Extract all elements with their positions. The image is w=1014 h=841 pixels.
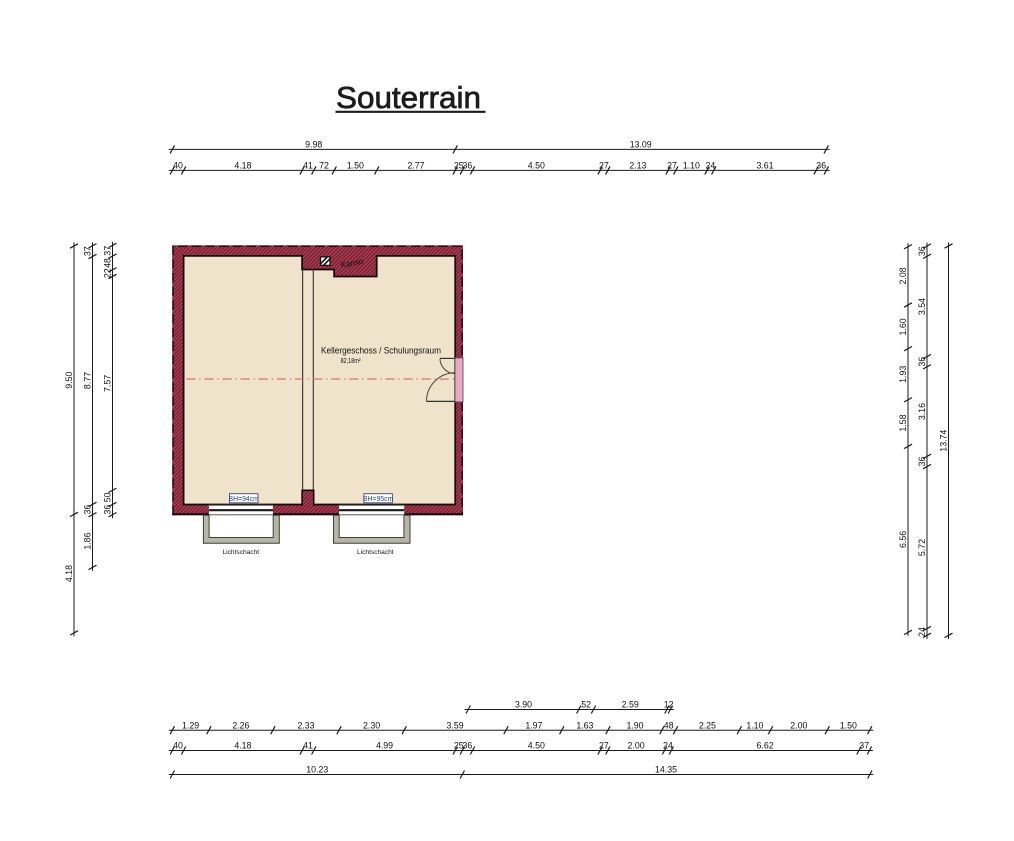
svg-text:1.50: 1.50 xyxy=(347,161,364,171)
svg-text:36: 36 xyxy=(816,161,826,171)
svg-text:9.98: 9.98 xyxy=(305,140,322,150)
svg-text:36: 36 xyxy=(103,505,113,515)
svg-text:4.99: 4.99 xyxy=(376,741,393,751)
svg-text:3.16: 3.16 xyxy=(917,403,927,420)
svg-text:2.33: 2.33 xyxy=(297,720,314,730)
svg-text:36: 36 xyxy=(463,161,473,171)
svg-text:50: 50 xyxy=(103,492,113,502)
svg-text:48: 48 xyxy=(664,720,674,730)
svg-text:1.29: 1.29 xyxy=(182,720,199,730)
svg-text:2.13: 2.13 xyxy=(629,161,646,171)
svg-text:4.18: 4.18 xyxy=(234,741,251,751)
svg-text:2.00: 2.00 xyxy=(790,720,807,730)
svg-text:14.35: 14.35 xyxy=(655,765,677,775)
svg-text:Kellergeschoss / Schulungsraum: Kellergeschoss / Schulungsraum xyxy=(321,345,441,356)
svg-text:37: 37 xyxy=(103,246,113,256)
svg-text:8.77: 8.77 xyxy=(83,372,93,389)
svg-text:3.54: 3.54 xyxy=(917,298,927,315)
svg-text:36: 36 xyxy=(463,741,473,751)
svg-text:BH=95cm: BH=95cm xyxy=(363,496,394,503)
svg-text:10.23: 10.23 xyxy=(306,765,328,775)
svg-text:37: 37 xyxy=(83,246,93,256)
svg-text:6.62: 6.62 xyxy=(757,741,774,751)
svg-text:9.50: 9.50 xyxy=(64,372,74,389)
svg-text:36: 36 xyxy=(83,505,93,515)
svg-text:4.50: 4.50 xyxy=(528,161,545,171)
svg-text:4.50: 4.50 xyxy=(528,741,545,751)
svg-text:1.63: 1.63 xyxy=(576,720,593,730)
svg-text:52: 52 xyxy=(581,700,591,710)
svg-text:36: 36 xyxy=(917,457,927,467)
svg-text:37: 37 xyxy=(859,741,869,751)
svg-text:2.59: 2.59 xyxy=(622,700,639,710)
svg-text:48: 48 xyxy=(103,258,113,268)
svg-text:27: 27 xyxy=(599,741,609,751)
svg-text:1.86: 1.86 xyxy=(83,532,93,549)
svg-text:2.77: 2.77 xyxy=(407,161,424,171)
svg-text:3.59: 3.59 xyxy=(447,720,464,730)
svg-text:2.25: 2.25 xyxy=(699,720,716,730)
svg-text:1.90: 1.90 xyxy=(626,720,643,730)
svg-text:1.60: 1.60 xyxy=(898,318,908,335)
svg-text:7.57: 7.57 xyxy=(103,375,113,392)
svg-text:40: 40 xyxy=(173,741,183,751)
svg-text:2.30: 2.30 xyxy=(363,720,380,730)
svg-text:41: 41 xyxy=(303,741,313,751)
svg-text:1.93: 1.93 xyxy=(898,366,908,383)
svg-text:1.97: 1.97 xyxy=(525,720,542,730)
svg-text:Lichtschacht: Lichtschacht xyxy=(222,549,259,556)
svg-text:4.18: 4.18 xyxy=(234,161,251,171)
svg-text:40: 40 xyxy=(173,161,183,171)
svg-text:5.72: 5.72 xyxy=(917,539,927,556)
svg-text:BH=94cm: BH=94cm xyxy=(228,496,259,503)
svg-text:1.10: 1.10 xyxy=(746,720,763,730)
svg-text:4.18: 4.18 xyxy=(64,565,74,582)
svg-text:13.74: 13.74 xyxy=(939,430,949,452)
svg-text:41: 41 xyxy=(303,161,313,171)
svg-text:24: 24 xyxy=(917,627,927,637)
svg-text:6.56: 6.56 xyxy=(898,531,908,548)
svg-text:24: 24 xyxy=(663,741,673,751)
svg-text:1.58: 1.58 xyxy=(898,414,908,431)
svg-text:Lichtschacht: Lichtschacht xyxy=(357,549,394,556)
svg-text:13.09: 13.09 xyxy=(630,140,652,150)
svg-text:22: 22 xyxy=(103,268,113,278)
svg-text:27: 27 xyxy=(599,161,609,171)
svg-text:36: 36 xyxy=(917,246,927,256)
svg-text:1.50: 1.50 xyxy=(840,720,857,730)
svg-text:1.10: 1.10 xyxy=(683,161,700,171)
svg-text:3.90: 3.90 xyxy=(515,700,532,710)
svg-text:82,18m²: 82,18m² xyxy=(341,358,362,365)
svg-text:Souterrain: Souterrain xyxy=(336,80,481,115)
svg-text:12: 12 xyxy=(664,700,674,710)
svg-text:24: 24 xyxy=(706,161,716,171)
svg-text:3.61: 3.61 xyxy=(756,161,773,171)
svg-text:2.08: 2.08 xyxy=(898,267,908,284)
svg-text:72: 72 xyxy=(319,161,329,171)
svg-text:2.00: 2.00 xyxy=(628,741,645,751)
svg-text:27: 27 xyxy=(667,161,677,171)
svg-text:36: 36 xyxy=(917,357,927,367)
svg-text:2.26: 2.26 xyxy=(232,720,249,730)
